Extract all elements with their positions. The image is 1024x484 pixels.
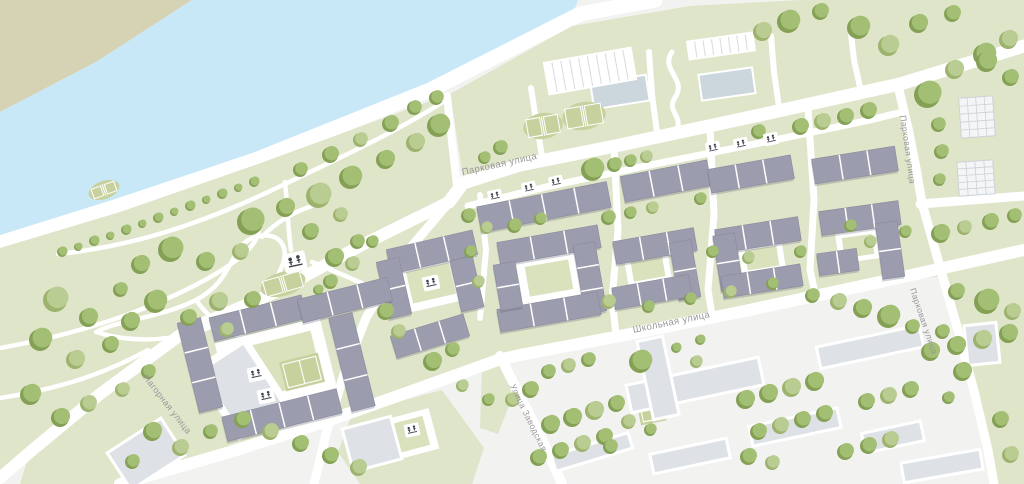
- tree-crown: [148, 290, 168, 310]
- tree-crown: [708, 245, 719, 256]
- tree-crown: [221, 322, 234, 335]
- tree-crown: [833, 293, 847, 307]
- tree-crown: [885, 431, 899, 445]
- tree-crown: [212, 292, 228, 308]
- tree-crown: [1009, 208, 1022, 221]
- tree-crown: [985, 213, 999, 227]
- tree-crown: [907, 319, 920, 332]
- tree-crown: [933, 117, 946, 130]
- tree-crown: [648, 201, 659, 212]
- tree-crown: [368, 235, 379, 246]
- tree-crown: [105, 336, 119, 350]
- tree-crown: [463, 208, 476, 221]
- tree-crown: [795, 118, 809, 132]
- tree-crown: [863, 102, 877, 116]
- tree-crown: [944, 391, 955, 402]
- tree-crown: [431, 90, 444, 103]
- tree-crown: [325, 146, 339, 160]
- tree-crown: [756, 22, 772, 38]
- city-map[interactable]: Парковая улицаПарковая улицаПарковая ули…: [0, 0, 1024, 484]
- tree-crown: [219, 188, 228, 197]
- tree-crown: [644, 300, 655, 311]
- playground-figure: [714, 146, 716, 147]
- tree-crown: [603, 210, 616, 223]
- tree-crown: [840, 443, 854, 457]
- tree-crown: [146, 422, 162, 438]
- tree-crown: [115, 282, 128, 295]
- tree-crown: [781, 10, 801, 30]
- tree-crown: [75, 243, 82, 250]
- tree-crown: [134, 255, 150, 271]
- tree-crown: [743, 448, 757, 462]
- tree-crown: [187, 200, 196, 209]
- tree-crown: [536, 212, 547, 223]
- tree-crown: [162, 237, 184, 259]
- tree-crown: [739, 390, 755, 406]
- tree-crown: [947, 5, 961, 19]
- tree-crown: [235, 184, 242, 191]
- tree-crown: [692, 355, 703, 366]
- tree-crown: [819, 405, 833, 419]
- tree-crown: [936, 144, 949, 157]
- tree-crown: [295, 435, 309, 449]
- tree-crown: [626, 154, 637, 165]
- tree-crown: [393, 324, 406, 337]
- tree-crown: [495, 140, 508, 153]
- tree-crown: [935, 173, 946, 184]
- tree-crown: [1002, 30, 1018, 46]
- playground-figure: [496, 194, 498, 195]
- tree-crown: [155, 212, 164, 221]
- tree-crown: [959, 220, 972, 233]
- tree-crown: [566, 408, 582, 424]
- playground-figure: [252, 374, 255, 375]
- tree-crown: [379, 150, 395, 166]
- tree-crown: [588, 401, 604, 417]
- playground-figure: [427, 283, 430, 284]
- tree-crown: [697, 334, 706, 343]
- tree-crown: [633, 350, 653, 370]
- tree-crown: [33, 328, 53, 348]
- tree-crown: [235, 243, 249, 257]
- tree-crown: [611, 395, 625, 409]
- tree-crown: [978, 289, 1000, 311]
- tree-crown: [205, 424, 218, 437]
- tree-crown: [352, 234, 365, 247]
- tree-crown: [175, 439, 189, 453]
- tree-crown: [995, 411, 1009, 425]
- tree-crown: [956, 362, 972, 378]
- tree-crown: [866, 235, 877, 246]
- tree-crown: [310, 183, 332, 205]
- tree-crown: [426, 352, 442, 368]
- tree-crown: [901, 225, 912, 236]
- tree-crown: [577, 435, 591, 449]
- tree-crown: [83, 395, 97, 409]
- playground-figure: [289, 262, 293, 263]
- tree-crown: [753, 423, 767, 437]
- tree-crown: [409, 100, 422, 113]
- tree-crown: [123, 224, 132, 233]
- tree-crown: [585, 158, 605, 178]
- tree-crown: [458, 379, 469, 390]
- tree-crown: [979, 51, 997, 69]
- tree-crown: [767, 455, 780, 468]
- tree-crown: [380, 303, 394, 317]
- tree-crown: [265, 423, 279, 437]
- tree-crown: [328, 248, 344, 264]
- playground-figure: [557, 180, 559, 181]
- tree-crown: [696, 192, 707, 203]
- tree-crown: [91, 235, 100, 244]
- tree-crown: [305, 223, 319, 237]
- tree-crown: [861, 393, 875, 407]
- tree-crown: [47, 287, 69, 309]
- tree-crown: [107, 232, 114, 239]
- tree-crown: [642, 150, 653, 161]
- tree-crown: [199, 252, 215, 268]
- tree-crown: [335, 207, 348, 220]
- tree-crown: [447, 342, 460, 355]
- tree-crown: [856, 299, 872, 315]
- tree-crown: [1007, 303, 1021, 317]
- tree-crown: [117, 382, 130, 395]
- tree-crown: [817, 113, 831, 127]
- tree-crown: [883, 387, 897, 401]
- playground-figure: [525, 188, 527, 189]
- tree-crown: [815, 3, 829, 17]
- tree-crown: [623, 414, 636, 427]
- tree-crown: [525, 381, 539, 395]
- playground-figure: [767, 139, 769, 140]
- tree-crown: [251, 176, 260, 185]
- tree-crown: [325, 274, 338, 287]
- tree-crown: [762, 384, 778, 400]
- tree-crown: [555, 442, 569, 456]
- tree-crown: [295, 162, 308, 175]
- tree-crown: [1002, 324, 1018, 340]
- tree-crown: [171, 208, 178, 215]
- tree-crown: [797, 411, 811, 425]
- tree-crown: [905, 381, 919, 395]
- tree-crown: [484, 393, 495, 404]
- tree-crown: [768, 277, 779, 288]
- tree-crown: [881, 305, 901, 325]
- playground-figure: [408, 430, 411, 431]
- tree-crown: [124, 312, 140, 328]
- tree-crown: [796, 245, 807, 256]
- tree-crown: [23, 384, 41, 402]
- tree-crown: [785, 378, 801, 394]
- tree-crown: [646, 423, 657, 434]
- tree-crown: [69, 350, 85, 366]
- playground-figure: [742, 142, 744, 143]
- playground-figure: [267, 394, 270, 395]
- tree-crown: [482, 221, 493, 232]
- tree-crown: [775, 417, 789, 431]
- tree-crown: [673, 342, 682, 351]
- tree-crown: [726, 285, 737, 296]
- tree-crown: [948, 60, 964, 76]
- tree-crown: [82, 308, 98, 324]
- tree-crown: [241, 207, 264, 230]
- tree-crown: [355, 132, 368, 145]
- tree-crown: [840, 108, 854, 122]
- map-viewport[interactable]: Парковая улицаПарковая улицаПарковая ули…: [0, 0, 1024, 484]
- playground-figure: [257, 372, 260, 373]
- tennis-court: [957, 160, 995, 196]
- tree-crown: [603, 294, 616, 307]
- tree-crown: [626, 206, 637, 217]
- playground-figure: [432, 281, 435, 282]
- tree-crown: [139, 220, 146, 227]
- tree-crown: [912, 14, 928, 30]
- tree-crown: [343, 166, 363, 186]
- tree-crown: [808, 372, 824, 388]
- playground-figure: [491, 196, 493, 197]
- tree-crown: [183, 309, 197, 323]
- playground-figure: [772, 137, 774, 138]
- tree-crown: [54, 408, 70, 424]
- tree-crown: [881, 35, 899, 53]
- tree-crown: [934, 224, 950, 240]
- tree-crown: [863, 437, 877, 451]
- tree-crown: [544, 415, 560, 431]
- tree-crown: [347, 256, 360, 269]
- tree-crown: [976, 330, 992, 346]
- tree-crown: [918, 80, 941, 103]
- tree-crown: [950, 336, 966, 352]
- tree-crown: [543, 364, 556, 377]
- tree-crown: [951, 283, 965, 297]
- tree-crown: [744, 251, 755, 262]
- tree-crown: [563, 358, 576, 371]
- tree-crown: [353, 459, 367, 473]
- playground-figure: [709, 148, 711, 149]
- tree-crown: [605, 439, 618, 452]
- tree-crown: [851, 16, 871, 36]
- tree-crown: [279, 198, 295, 214]
- tree-crown: [609, 157, 622, 170]
- tree-crown: [431, 114, 451, 134]
- playground-figure: [737, 144, 739, 145]
- tree-crown: [937, 324, 950, 337]
- tree-crown: [509, 218, 522, 231]
- tree-crown: [385, 115, 399, 129]
- playground-figure: [552, 182, 554, 183]
- tree-crown: [474, 275, 485, 286]
- tree-crown: [237, 411, 251, 425]
- tree-crown: [1005, 69, 1019, 83]
- tree-crown: [203, 196, 210, 203]
- tree-crown: [325, 447, 339, 461]
- tree-crown: [846, 219, 857, 230]
- tree-crown: [583, 352, 596, 365]
- playground-figure: [297, 260, 301, 261]
- tree-crown: [807, 288, 820, 301]
- tree-crown: [59, 246, 68, 255]
- tree-crown: [315, 284, 324, 293]
- tree-crown: [466, 245, 477, 256]
- playground-figure: [530, 186, 532, 187]
- tree-crown: [247, 291, 261, 305]
- playground-figure: [262, 396, 265, 397]
- tree-crown: [409, 133, 425, 149]
- playground-figure: [413, 428, 416, 429]
- tennis-court: [959, 96, 996, 138]
- tree-crown: [127, 454, 140, 467]
- tree-crown: [1005, 446, 1019, 460]
- tree-crown: [686, 292, 697, 303]
